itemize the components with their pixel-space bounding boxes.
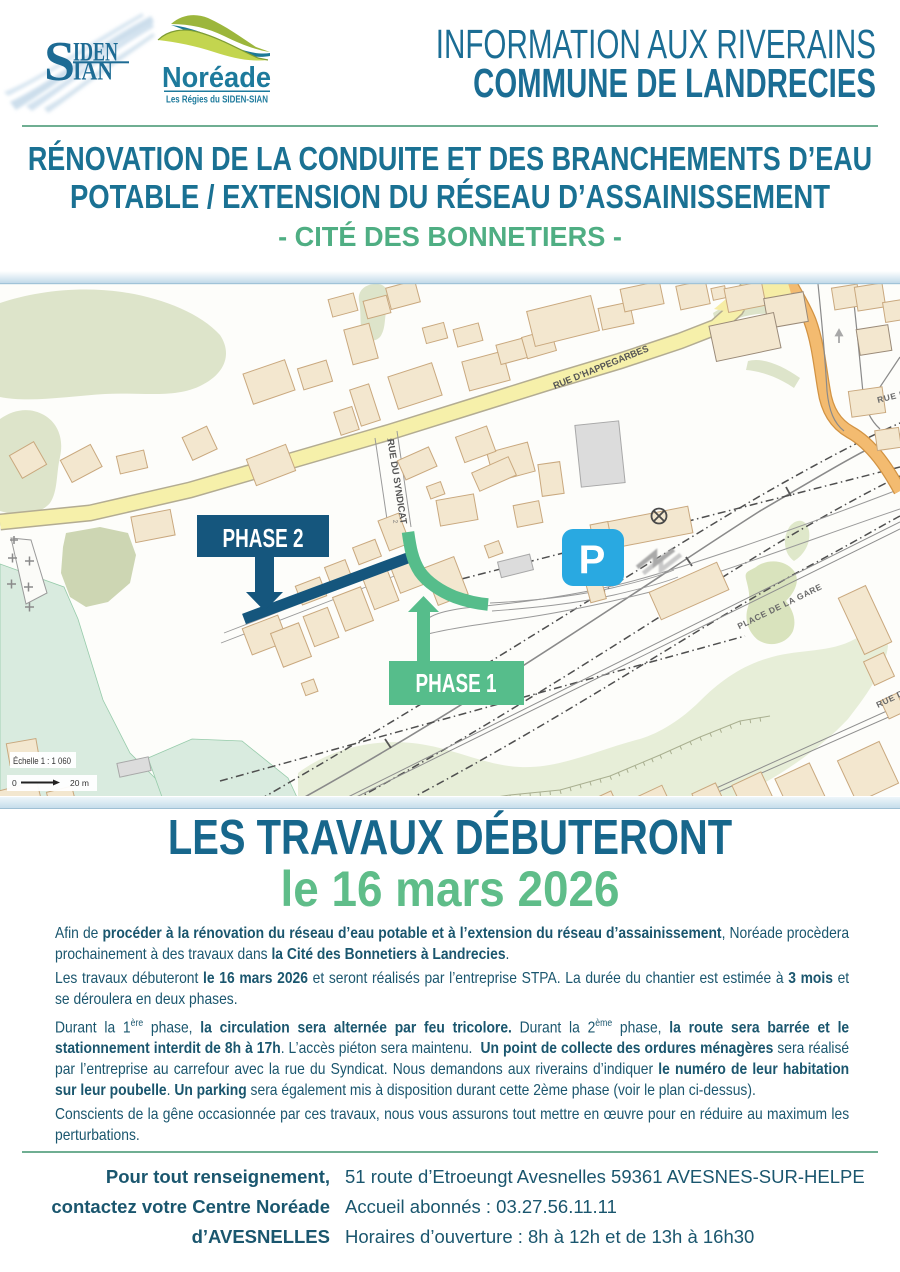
svg-text:PHASE 2: PHASE 2 <box>223 523 304 553</box>
svg-text:Échelle 1 : 1 060: Échelle 1 : 1 060 <box>13 756 71 766</box>
svg-text:P: P <box>579 538 606 582</box>
svg-text:PHASE 1: PHASE 1 <box>416 668 497 698</box>
svg-text:0: 0 <box>12 778 17 788</box>
svg-text:20 m: 20 m <box>70 778 89 788</box>
